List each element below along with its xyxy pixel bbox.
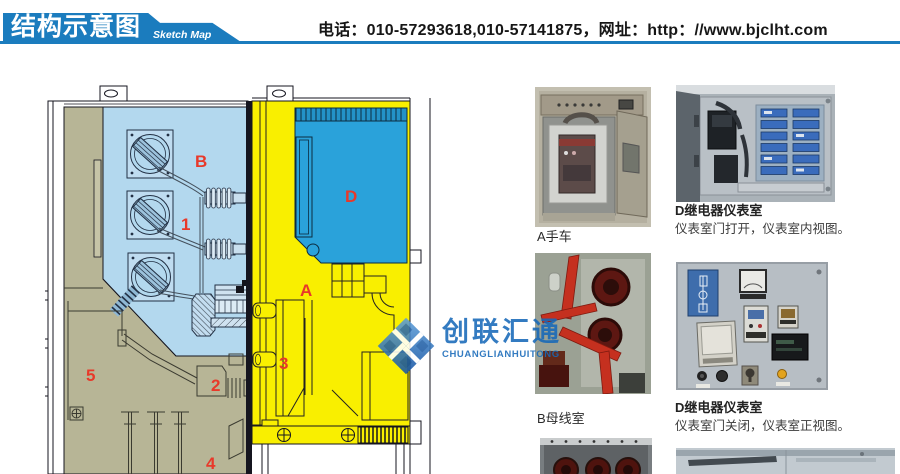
- cabinet-divider: [246, 101, 252, 474]
- contact-info: 电话：010-57293618,010-57141875，网址：http：//w…: [318, 16, 828, 40]
- page-title: 结构示意图: [11, 13, 141, 42]
- page-subtitle: Sketch Map: [153, 29, 211, 41]
- caption-d-closed-desc: 仪表室门关闭，仪表室正视图。: [675, 415, 850, 434]
- photo-bottom-right: [676, 448, 895, 474]
- zone-label-5: 5: [86, 366, 95, 385]
- title-banner: 结构示意图 Sketch Map: [3, 13, 241, 42]
- photo-bottom-left: [540, 438, 652, 474]
- header-rule: [0, 41, 900, 44]
- instrument-compartment-zone: [295, 108, 407, 263]
- company-watermark: 创联汇通 CHUANGLIANHUITONG: [377, 316, 562, 376]
- photo-a-handcart: [535, 87, 651, 227]
- company-name-cn: 创联汇通: [442, 316, 562, 348]
- structure-diagram: B D 1 A 3 2 5 4: [45, 78, 435, 474]
- zone-label-instrument: D: [345, 187, 357, 206]
- catalog-page: 结构示意图 Sketch Map 电话：010-57293618,010-571…: [0, 0, 900, 474]
- company-name-en: CHUANGLIANHUITONG: [442, 349, 562, 360]
- zone-label-4: 4: [206, 454, 216, 473]
- caption-d-open-desc: 仪表室门打开，仪表室内视图。: [675, 218, 850, 237]
- caption-a-handcart: A手车: [537, 226, 572, 245]
- photo-d-instrument-closed: [676, 262, 828, 390]
- company-logo-icon: [377, 316, 435, 376]
- caption-d-closed-title: D继电器仪表室: [675, 397, 762, 416]
- photo-d-instrument-open: [676, 85, 835, 202]
- zone-label-2: 2: [211, 376, 220, 395]
- cabinet-base: [252, 426, 410, 474]
- zone-label-busbar: B: [195, 152, 207, 171]
- zone-label-1: 1: [181, 215, 190, 234]
- zone-label-3: 3: [279, 354, 288, 373]
- zone-label-breaker: A: [300, 281, 312, 300]
- caption-d-open-title: D继电器仪表室: [675, 200, 762, 219]
- caption-b-busbar-room: B母线室: [537, 408, 585, 427]
